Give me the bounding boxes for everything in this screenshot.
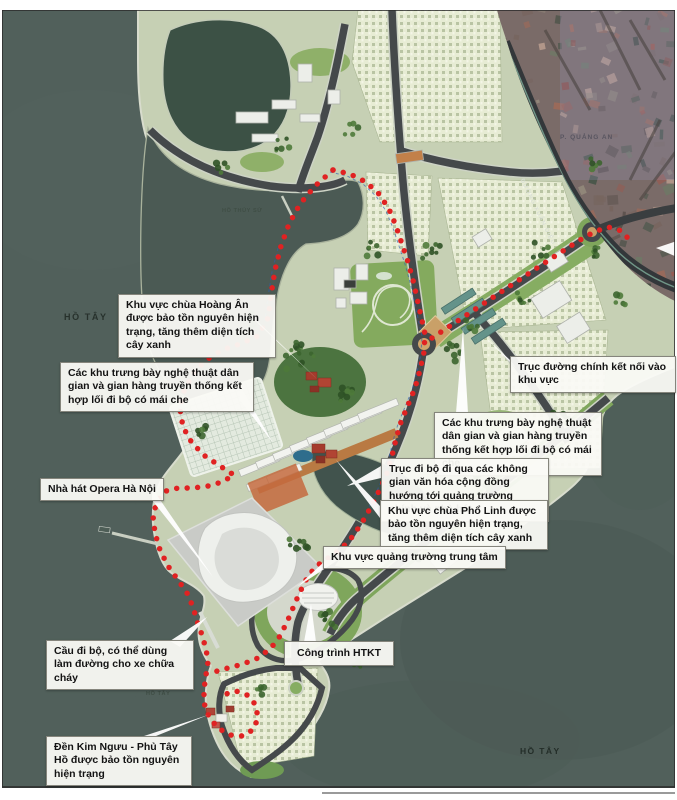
htkt-building — [298, 584, 338, 611]
callout-text: Trục đường chính kết nối vào khu vực — [518, 361, 666, 386]
label-ward-quang-an: P. QUẢNG AN — [560, 134, 613, 141]
label-ho-tay-small: HỒ TÂY — [146, 691, 170, 697]
callout-chua-hoang-an: Khu vực chùa Hoàng Ân được bảo tồn nguyê… — [118, 294, 276, 358]
callout-htkt: Công trình HTKT — [284, 641, 394, 666]
lake-thuy-su — [163, 20, 291, 152]
callout-den-kim-nguu: Đền Kim Ngưu - Phủ Tây Hồ được bảo tồn n… — [46, 736, 192, 786]
callout-opera: Nhà hát Opera Hà Nội — [40, 478, 164, 501]
bottom-border-line — [322, 792, 675, 794]
callout-text: Cầu đi bộ, có thể dùng làm đường cho xe … — [54, 645, 174, 684]
callout-cau-di-bo: Cầu đi bộ, có thể dùng làm đường cho xe … — [46, 640, 194, 690]
callout-trung-bay-left: Các khu trưng bày nghệ thuật dân gian và… — [60, 362, 254, 412]
callout-quang-truong: Khu vực quảng trường trung tâm — [323, 546, 506, 569]
callout-text: Nhà hát Opera Hà Nội — [48, 483, 156, 495]
callout-text: Khu vực chùa Phổ Linh được bảo tồn nguyê… — [388, 505, 536, 544]
callout-text: Khu vực chùa Hoàng Ân được bảo tồn nguyê… — [126, 299, 259, 351]
callout-truc-duong-chinh: Trục đường chính kết nối vào khu vực — [510, 356, 676, 393]
callout-text: Công trình HTKT — [297, 647, 381, 659]
callout-text: Các khu trưng bày nghệ thuật dân gian và… — [68, 367, 242, 406]
callout-text: Khu vực quảng trường trung tâm — [331, 551, 498, 563]
label-ho-tay-bottom: HỒ TÂY — [520, 746, 561, 756]
label-ho-tay-main: HỒ TÂY — [64, 312, 108, 322]
label-ho-thuy-su: HỒ THỦY SỨ — [222, 208, 262, 214]
callout-text: Đền Kim Ngưu - Phủ Tây Hồ được bảo tồn n… — [54, 741, 179, 780]
planning-map-page: HỒ TÂY HỒ THỦY SỨ HỒ TÂY HỒ TÂY P. QUẢNG… — [0, 0, 677, 800]
callout-chua-pho-linh: Khu vực chùa Phổ Linh được bảo tồn nguyê… — [380, 500, 548, 550]
